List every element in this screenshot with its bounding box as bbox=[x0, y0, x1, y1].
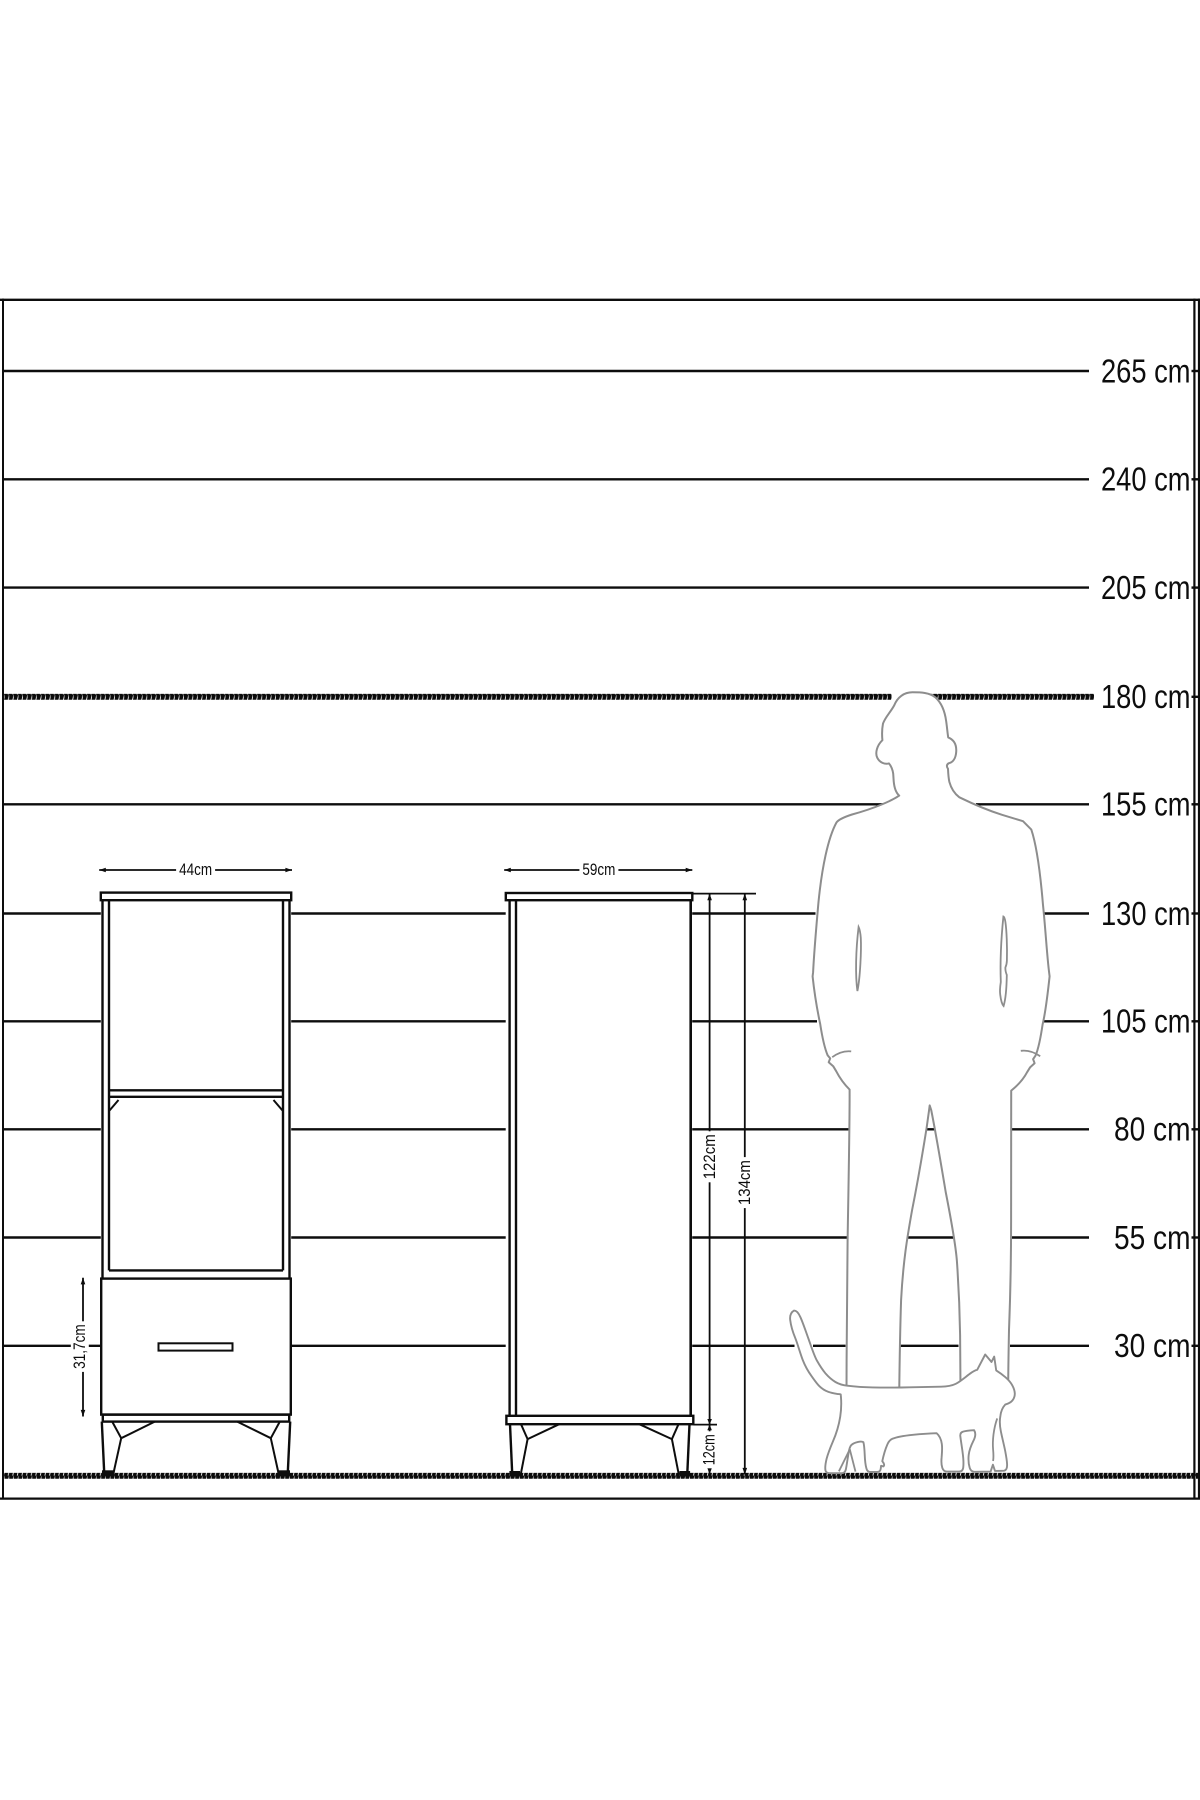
svg-text:55 cm: 55 cm bbox=[1114, 1219, 1191, 1256]
svg-text:134cm: 134cm bbox=[735, 1160, 754, 1205]
svg-text:12cm: 12cm bbox=[699, 1434, 718, 1465]
svg-text:80 cm: 80 cm bbox=[1114, 1111, 1191, 1148]
svg-text:30 cm: 30 cm bbox=[1114, 1327, 1191, 1364]
svg-text:59cm: 59cm bbox=[582, 860, 615, 879]
svg-text:122cm: 122cm bbox=[700, 1134, 719, 1179]
svg-text:180 cm: 180 cm bbox=[1101, 678, 1191, 715]
svg-text:265 cm: 265 cm bbox=[1101, 352, 1191, 389]
svg-text:44cm: 44cm bbox=[179, 860, 212, 879]
svg-text:105 cm: 105 cm bbox=[1101, 1003, 1191, 1040]
svg-text:205 cm: 205 cm bbox=[1101, 569, 1191, 606]
svg-text:240 cm: 240 cm bbox=[1101, 461, 1191, 498]
svg-text:130 cm: 130 cm bbox=[1101, 895, 1191, 932]
svg-text:31,7cm: 31,7cm bbox=[70, 1324, 89, 1369]
svg-text:155 cm: 155 cm bbox=[1101, 786, 1191, 823]
